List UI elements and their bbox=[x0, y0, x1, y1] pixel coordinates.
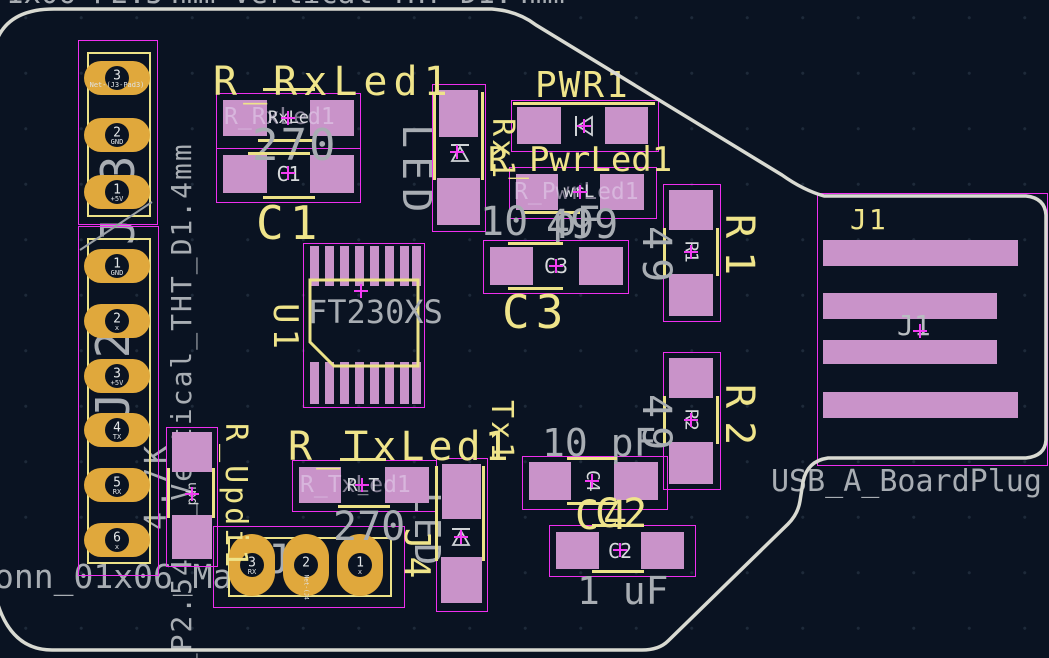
silk-line bbox=[567, 457, 617, 460]
j2-pad-6[interactable]: 6 x bbox=[84, 523, 150, 557]
rx-led-value: LED bbox=[396, 124, 436, 220]
c1-ref: C1 bbox=[256, 200, 323, 246]
tx-led-pad[interactable] bbox=[441, 557, 482, 603]
r-pwrled1-ref: R_PwrLed1 bbox=[488, 143, 672, 177]
j2-fab-outline bbox=[87, 238, 151, 564]
j1-pad[interactable] bbox=[823, 392, 1018, 418]
u1-pad[interactable] bbox=[340, 362, 349, 404]
u1-pad[interactable] bbox=[412, 246, 421, 286]
pad-net-label: TX bbox=[113, 433, 121, 441]
r2-ref: R2 bbox=[719, 384, 759, 468]
r-updi1-ref: R_Updi1 bbox=[220, 423, 250, 573]
u1-pad[interactable] bbox=[325, 362, 334, 404]
r2-pad[interactable] bbox=[669, 358, 713, 398]
u1-pad[interactable] bbox=[340, 246, 349, 286]
pwr1-pad[interactable] bbox=[605, 107, 648, 144]
silk-line bbox=[167, 468, 170, 518]
u1-ref: U1 bbox=[268, 303, 302, 363]
pad-net-label: +5V bbox=[111, 195, 124, 203]
u1-pad[interactable] bbox=[412, 362, 421, 404]
j2-pad-4[interactable]: 4 TX bbox=[84, 413, 150, 447]
silk-line bbox=[248, 152, 310, 155]
u1-pad[interactable] bbox=[355, 362, 364, 404]
u1-pad[interactable] bbox=[385, 362, 394, 404]
u1-pad[interactable] bbox=[385, 246, 394, 286]
silk-line bbox=[482, 466, 485, 561]
u1-pad[interactable] bbox=[325, 246, 334, 286]
j1-ref: J1 bbox=[850, 206, 888, 234]
j2-pad-1[interactable]: 1 GND bbox=[84, 249, 150, 283]
pad-net-label: x bbox=[115, 543, 119, 551]
tx-led-pad[interactable] bbox=[442, 464, 481, 519]
silk-line bbox=[508, 242, 563, 245]
j1-value: USB_A_BoardPlug bbox=[771, 467, 1042, 497]
pad-net-label: Net-(J3-Pad3) bbox=[90, 81, 145, 89]
pwr1-pad[interactable] bbox=[517, 107, 561, 144]
j4-pad-2[interactable]: 2 Net-(J4 bbox=[283, 534, 329, 596]
j1-pad[interactable] bbox=[823, 240, 1018, 266]
j4-ref: J4 bbox=[398, 528, 434, 590]
u1-pad[interactable] bbox=[370, 246, 379, 286]
j2-pad-2[interactable]: 2 x bbox=[84, 304, 150, 338]
pad-net-label: +5V bbox=[111, 379, 124, 387]
r-updi1-pad[interactable] bbox=[172, 515, 212, 559]
c3-pad[interactable] bbox=[490, 247, 533, 285]
c3-ref: C3 bbox=[502, 289, 569, 335]
c4-pad[interactable] bbox=[529, 462, 571, 500]
pad-net-label: RX bbox=[113, 488, 121, 496]
silk-line bbox=[212, 468, 215, 518]
u1-pad[interactable] bbox=[310, 362, 319, 404]
c2-ref: C2 bbox=[595, 494, 651, 534]
pad-net-label: GND bbox=[111, 269, 124, 277]
pad-net-label: GND bbox=[111, 138, 124, 146]
tx-led-ref: Tx1 bbox=[486, 400, 516, 466]
j3-pad-2[interactable]: 2 GND bbox=[84, 118, 150, 152]
pad-net-label: x bbox=[115, 324, 119, 332]
u1-pad[interactable] bbox=[310, 246, 319, 286]
r-rxled1-ref: R_RxLed1 bbox=[213, 62, 454, 102]
r1-ref: R1 bbox=[719, 214, 759, 298]
c3-pad[interactable] bbox=[579, 247, 623, 285]
j2-pad-3[interactable]: 3 +5V bbox=[84, 359, 150, 393]
rx-led-pad[interactable] bbox=[437, 178, 480, 225]
u1-pad[interactable] bbox=[370, 362, 379, 404]
u1-pad[interactable] bbox=[400, 362, 409, 404]
j3-pad-1[interactable]: 1 +5V bbox=[84, 175, 150, 209]
c2-value: 1 uF bbox=[577, 572, 669, 610]
pcb-canvas: 1x06_P2.54mm_Vertical_THT_D1.4mm al_P2.5… bbox=[0, 0, 1049, 658]
silk-line bbox=[433, 92, 436, 180]
r-rxled1-value: 270 bbox=[252, 124, 337, 168]
j1-pad[interactable] bbox=[823, 340, 997, 364]
u1-pad[interactable] bbox=[400, 246, 409, 286]
pwr1-ref: PWR1 bbox=[535, 68, 630, 104]
r-txled1-value: 270 bbox=[333, 507, 405, 547]
pad-net-label: x bbox=[358, 568, 362, 576]
u1-pad[interactable] bbox=[355, 246, 364, 286]
j3-pad-3[interactable]: 3 Net-(J3-Pad3) bbox=[84, 61, 150, 95]
r-pwrled1-value: 499 bbox=[546, 205, 618, 245]
silk-line bbox=[481, 92, 484, 180]
pad-number: 2 bbox=[302, 556, 310, 571]
r1-pad[interactable] bbox=[669, 190, 713, 230]
c2-pad[interactable] bbox=[641, 532, 684, 569]
r-updi1-pad[interactable] bbox=[172, 432, 212, 472]
r-txled1-ref: R_TxLed1 bbox=[288, 427, 513, 467]
pad-net-label: Net-(J4 bbox=[303, 575, 310, 600]
top-clipped-footprint-text: 1x06_P2.54mm_Vertical_THT_D1.4mm bbox=[6, 0, 565, 8]
j2-pad-5[interactable]: 5 RX bbox=[84, 468, 150, 502]
r1-value: 49 bbox=[636, 226, 676, 296]
u1-value: FT230XS bbox=[308, 296, 443, 328]
